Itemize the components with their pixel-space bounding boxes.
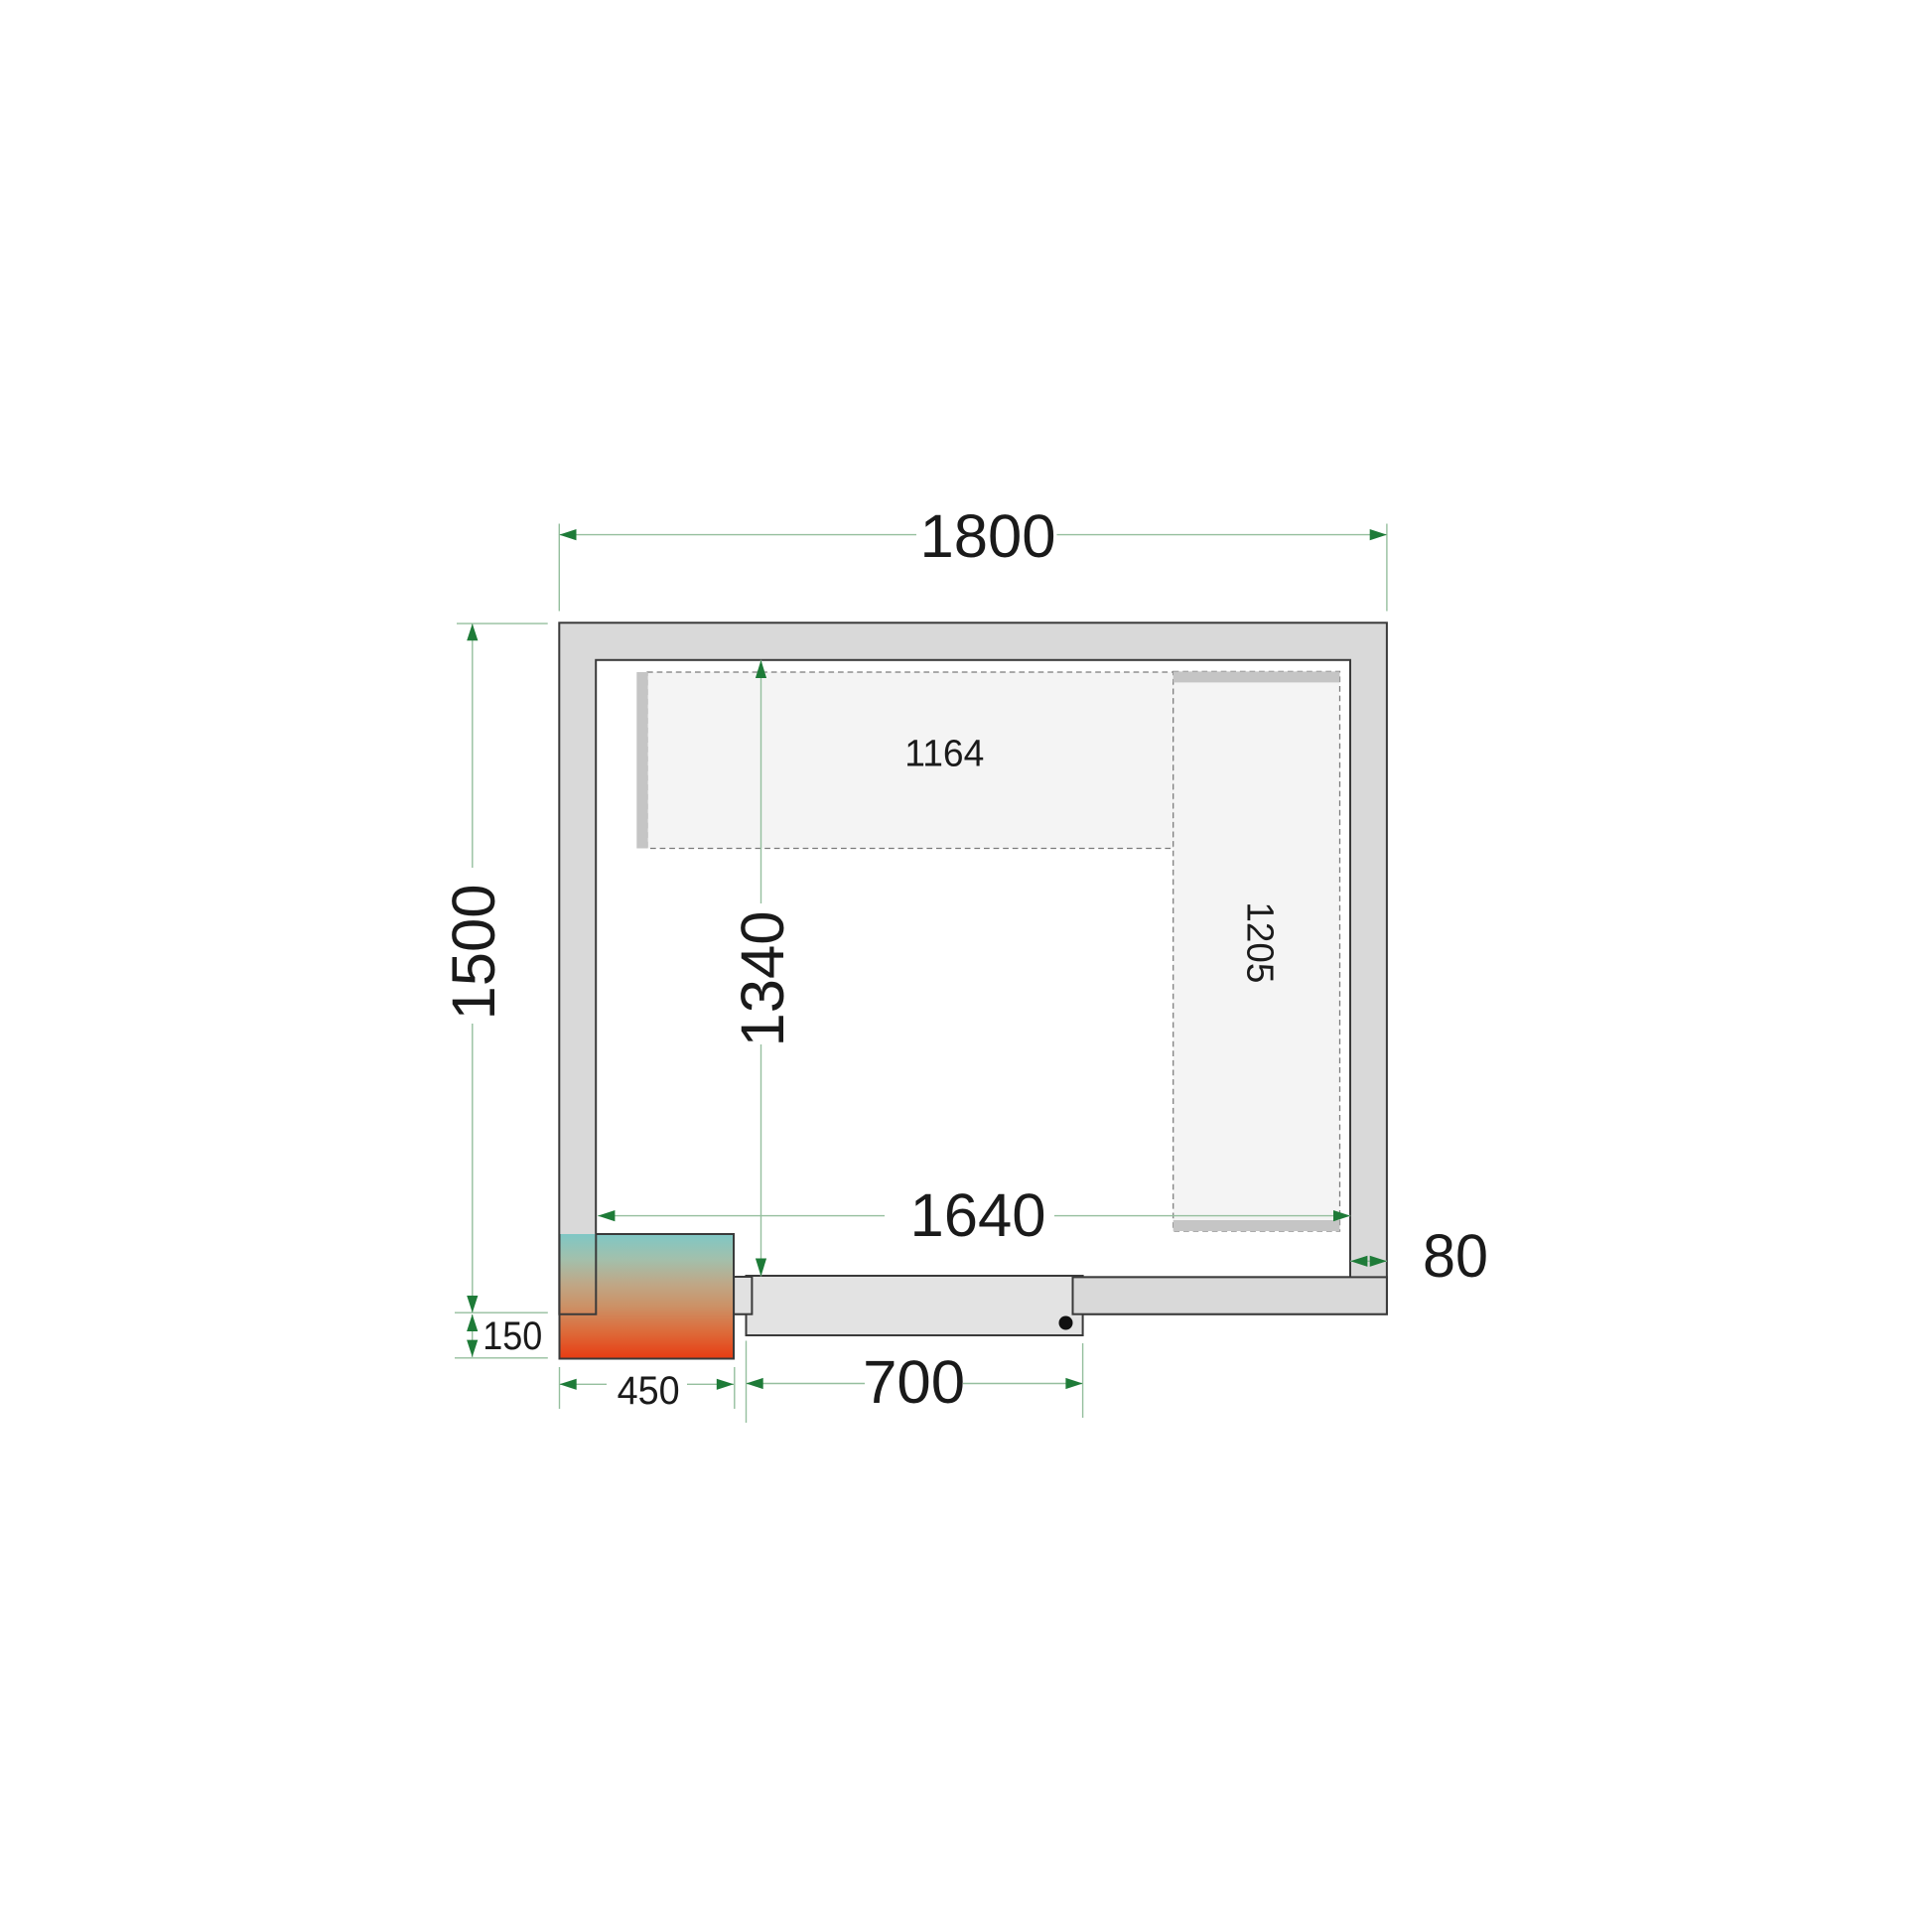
svg-text:1164: 1164	[904, 733, 984, 774]
svg-text:1500: 1500	[440, 885, 507, 1021]
svg-text:1800: 1800	[920, 502, 1056, 570]
svg-text:80: 80	[1423, 1222, 1488, 1290]
svg-text:700: 700	[863, 1348, 965, 1416]
svg-text:450: 450	[618, 1369, 680, 1413]
svg-text:1205: 1205	[1239, 901, 1281, 983]
svg-text:150: 150	[483, 1314, 542, 1358]
svg-text:1340: 1340	[729, 911, 796, 1047]
svg-text:1640: 1640	[910, 1181, 1046, 1249]
